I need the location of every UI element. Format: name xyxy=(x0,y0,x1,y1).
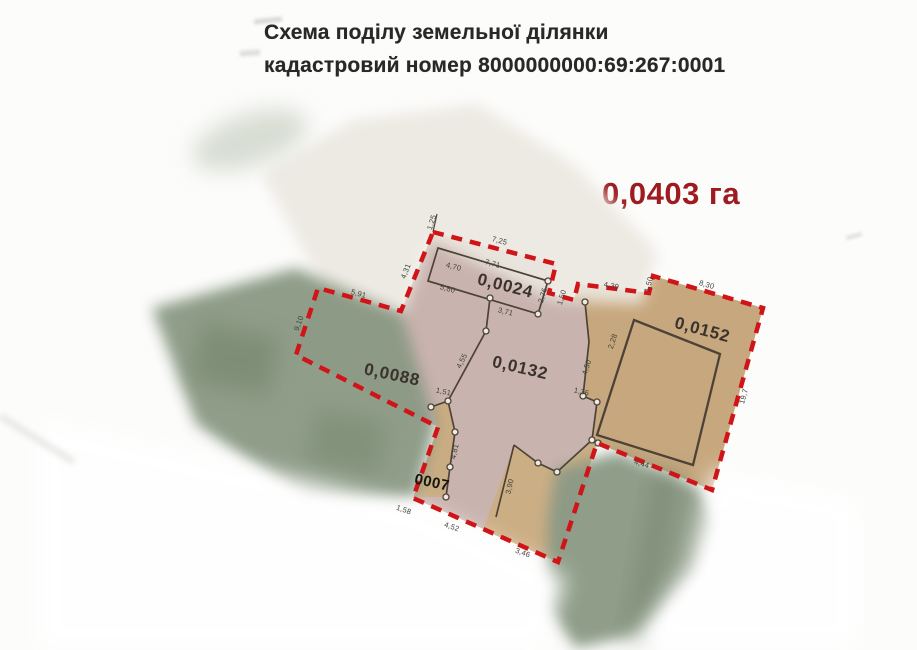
survey-point xyxy=(535,460,541,466)
scanned-scheme-page: Схема поділу земельної ділянки кадастров… xyxy=(0,0,917,650)
survey-point xyxy=(443,494,449,500)
survey-point xyxy=(554,469,560,475)
scan-smudge-2 xyxy=(240,49,260,56)
dimension-label: 8,30 xyxy=(698,278,715,291)
survey-point xyxy=(447,464,453,470)
scan-smudge-3 xyxy=(846,232,862,240)
survey-point xyxy=(589,437,595,443)
survey-point xyxy=(594,399,600,405)
scan-smudge-1 xyxy=(254,17,282,25)
survey-point xyxy=(445,398,451,404)
survey-point xyxy=(483,328,489,334)
survey-point xyxy=(535,311,541,317)
survey-point xyxy=(428,404,434,410)
survey-point xyxy=(452,429,458,435)
survey-point xyxy=(582,299,588,305)
survey-point xyxy=(487,295,493,301)
cadastral-plan: 1,25 7,25 7,71 4,70 5,80 3,71 2,76 1,50 … xyxy=(0,0,917,650)
